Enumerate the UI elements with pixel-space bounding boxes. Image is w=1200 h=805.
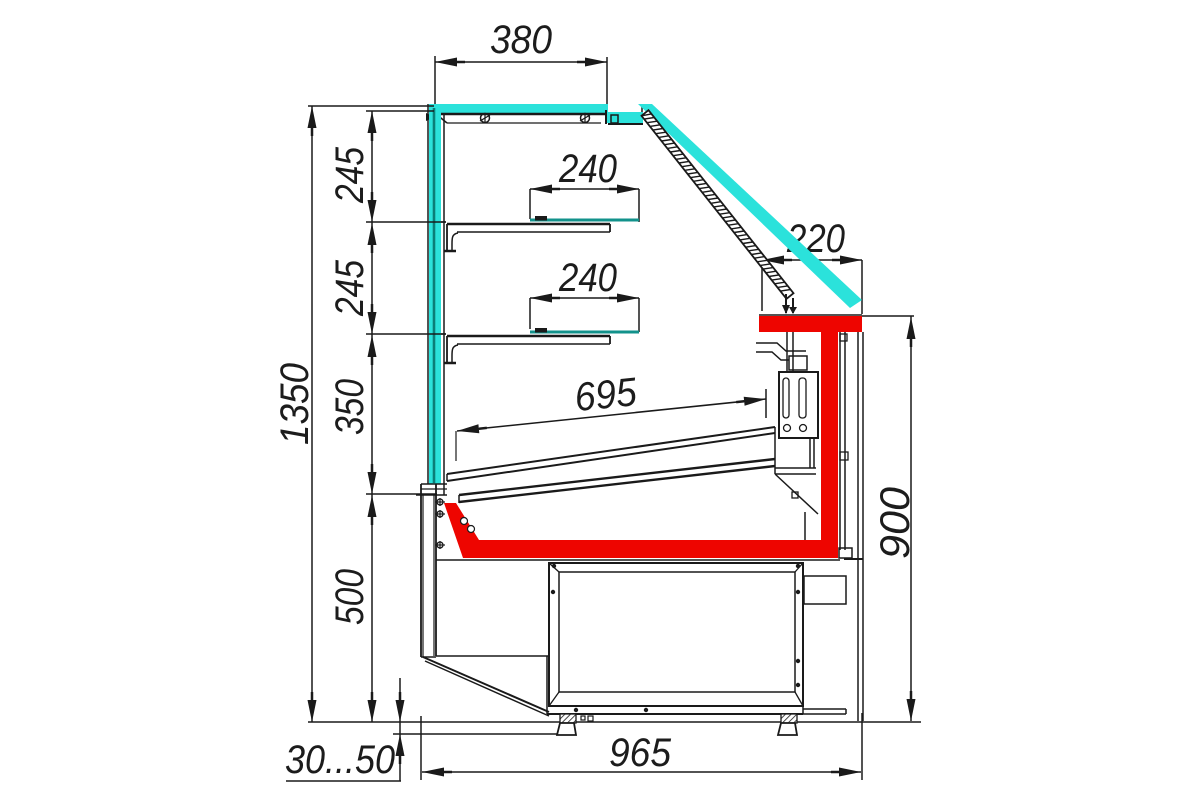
svg-text:245: 245	[328, 146, 372, 203]
svg-text:695: 695	[573, 370, 640, 420]
svg-text:900: 900	[871, 486, 918, 559]
svg-text:965: 965	[609, 731, 672, 775]
svg-text:350: 350	[328, 379, 372, 435]
svg-text:500: 500	[328, 569, 372, 625]
svg-text:240: 240	[558, 147, 617, 191]
svg-text:380: 380	[490, 18, 552, 62]
svg-text:240: 240	[558, 256, 617, 300]
svg-text:30...50: 30...50	[285, 738, 395, 782]
svg-text:1350: 1350	[273, 363, 317, 445]
svg-text:245: 245	[328, 259, 372, 316]
